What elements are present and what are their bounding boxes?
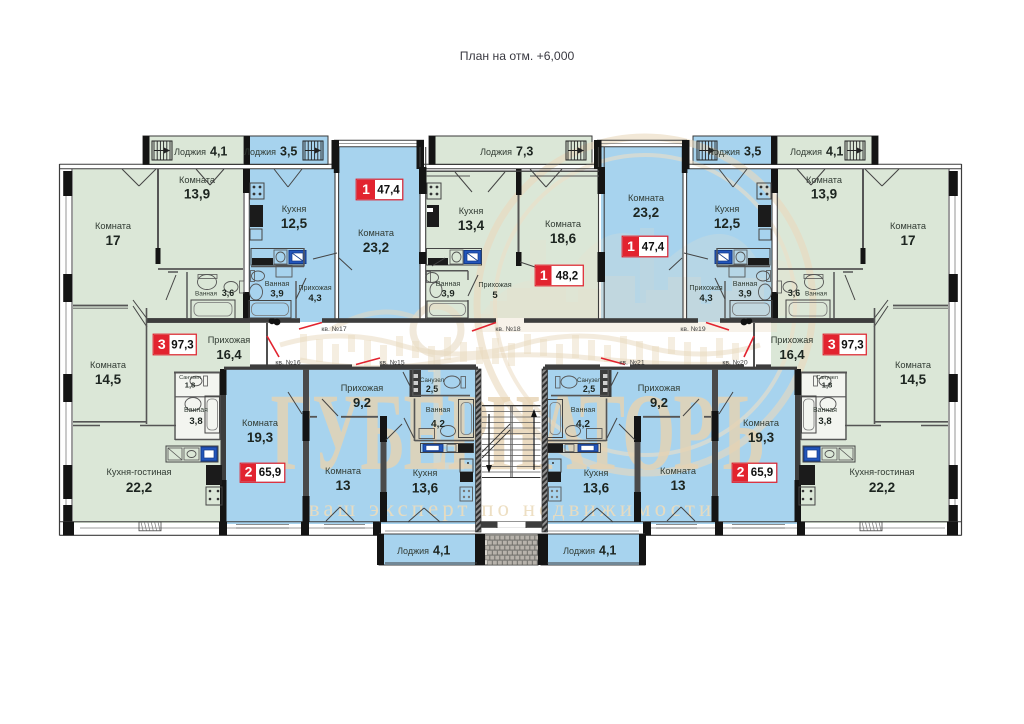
svg-text:Санузел: Санузел bbox=[420, 377, 444, 384]
svg-text:4,1: 4,1 bbox=[210, 145, 227, 159]
svg-text:23,2: 23,2 bbox=[633, 205, 659, 220]
svg-text:3: 3 bbox=[828, 336, 836, 352]
svg-text:97,3: 97,3 bbox=[171, 340, 193, 352]
svg-text:кв. №16: кв. №16 bbox=[275, 360, 300, 367]
svg-text:2,5: 2,5 bbox=[426, 384, 438, 394]
svg-text:1: 1 bbox=[362, 181, 370, 197]
svg-text:9,2: 9,2 bbox=[353, 395, 371, 410]
svg-text:План на отм. +6,000: План на отм. +6,000 bbox=[460, 49, 575, 63]
svg-text:Кухня-гостиная: Кухня-гостиная bbox=[107, 467, 172, 477]
svg-text:Кухня: Кухня bbox=[584, 468, 609, 478]
svg-text:19,3: 19,3 bbox=[748, 430, 775, 445]
svg-text:Комната: Комната bbox=[660, 466, 697, 476]
svg-text:Прихожая: Прихожая bbox=[771, 335, 814, 345]
svg-text:22,2: 22,2 bbox=[126, 480, 152, 495]
svg-text:ваш эксперт по недвижимости: ваш эксперт по недвижимости bbox=[309, 496, 715, 521]
svg-text:кв. №19: кв. №19 bbox=[680, 326, 705, 333]
svg-text:13,9: 13,9 bbox=[184, 187, 210, 202]
svg-text:Комната: Комната bbox=[179, 175, 216, 185]
svg-text:Комната: Комната bbox=[325, 466, 362, 476]
svg-text:кв. №20: кв. №20 bbox=[722, 360, 747, 367]
svg-text:14,5: 14,5 bbox=[95, 372, 122, 387]
svg-text:Прихожая: Прихожая bbox=[478, 280, 511, 289]
svg-text:97,3: 97,3 bbox=[841, 340, 863, 352]
svg-text:Кухня: Кухня bbox=[282, 204, 307, 214]
svg-text:Ванная: Ванная bbox=[436, 279, 461, 288]
svg-text:4,2: 4,2 bbox=[431, 419, 445, 430]
svg-text:13: 13 bbox=[335, 478, 351, 493]
svg-text:3,9: 3,9 bbox=[738, 289, 751, 300]
svg-text:3,5: 3,5 bbox=[280, 145, 297, 159]
svg-text:2,5: 2,5 bbox=[583, 384, 595, 394]
svg-text:Прихожая: Прихожая bbox=[208, 335, 251, 345]
svg-text:Ванная: Ванная bbox=[265, 279, 290, 288]
svg-text:Кухня: Кухня bbox=[715, 204, 740, 214]
svg-text:4,1: 4,1 bbox=[433, 544, 450, 558]
svg-text:2: 2 bbox=[737, 464, 745, 480]
svg-text:13,4: 13,4 bbox=[458, 218, 485, 233]
svg-text:Прихожая: Прихожая bbox=[341, 383, 384, 393]
svg-text:13,9: 13,9 bbox=[811, 187, 837, 202]
svg-text:5: 5 bbox=[492, 290, 498, 301]
svg-text:12,5: 12,5 bbox=[714, 216, 741, 231]
svg-text:кв. №17: кв. №17 bbox=[321, 326, 346, 333]
svg-text:Ванная: Ванная bbox=[733, 279, 758, 288]
svg-text:Комната: Комната bbox=[358, 228, 395, 238]
svg-text:Комната: Комната bbox=[895, 360, 932, 370]
svg-text:Санузел: Санузел bbox=[577, 377, 601, 384]
svg-text:47,4: 47,4 bbox=[642, 242, 665, 254]
svg-text:Ванная: Ванная bbox=[195, 291, 217, 298]
svg-text:Комната: Комната bbox=[743, 418, 780, 428]
svg-text:Комната: Комната bbox=[806, 175, 843, 185]
svg-text:3,9: 3,9 bbox=[270, 289, 283, 300]
svg-text:48,2: 48,2 bbox=[556, 271, 578, 283]
svg-text:Прихожая: Прихожая bbox=[298, 283, 331, 292]
svg-text:Кухня: Кухня bbox=[413, 468, 438, 478]
svg-text:4,1: 4,1 bbox=[599, 544, 616, 558]
svg-text:Прихожая: Прихожая bbox=[638, 383, 681, 393]
svg-text:Комната: Комната bbox=[242, 418, 279, 428]
svg-text:Ванная: Ванная bbox=[184, 407, 208, 414]
svg-text:Комната: Комната bbox=[545, 219, 582, 229]
svg-text:Ванная: Ванная bbox=[805, 291, 827, 298]
svg-text:65,9: 65,9 bbox=[259, 467, 281, 479]
svg-text:4,1: 4,1 bbox=[826, 145, 843, 159]
svg-text:13,6: 13,6 bbox=[412, 481, 439, 496]
svg-text:12,5: 12,5 bbox=[281, 216, 308, 231]
svg-text:3,5: 3,5 bbox=[744, 145, 761, 159]
svg-text:Лоджия: Лоджия bbox=[397, 546, 429, 556]
svg-text:23,2: 23,2 bbox=[363, 240, 389, 255]
svg-text:4,3: 4,3 bbox=[699, 293, 712, 304]
svg-text:3,6: 3,6 bbox=[222, 288, 234, 298]
svg-text:3,8: 3,8 bbox=[818, 416, 831, 427]
svg-text:Комната: Комната bbox=[628, 193, 665, 203]
svg-text:Ванная: Ванная bbox=[571, 405, 596, 414]
svg-text:16,4: 16,4 bbox=[779, 347, 805, 362]
svg-text:Лоджия: Лоджия bbox=[174, 147, 206, 157]
svg-text:14,5: 14,5 bbox=[900, 372, 927, 387]
svg-text:18,6: 18,6 bbox=[550, 231, 577, 246]
svg-text:4,2: 4,2 bbox=[576, 419, 590, 430]
svg-text:1: 1 bbox=[627, 238, 635, 254]
svg-text:Ванная: Ванная bbox=[426, 405, 451, 414]
svg-text:47,4: 47,4 bbox=[377, 185, 400, 197]
svg-text:2: 2 bbox=[245, 464, 253, 480]
svg-text:17: 17 bbox=[105, 233, 120, 248]
svg-text:22,2: 22,2 bbox=[869, 480, 895, 495]
svg-text:Комната: Комната bbox=[890, 221, 927, 231]
svg-text:65,9: 65,9 bbox=[751, 467, 773, 479]
svg-text:кв. №15: кв. №15 bbox=[379, 360, 404, 367]
svg-text:Комната: Комната bbox=[90, 360, 127, 370]
svg-text:3,6: 3,6 bbox=[788, 288, 800, 298]
svg-text:1,8: 1,8 bbox=[822, 381, 833, 390]
svg-text:13,6: 13,6 bbox=[583, 481, 610, 496]
svg-text:9,2: 9,2 bbox=[650, 395, 668, 410]
svg-text:1,8: 1,8 bbox=[185, 381, 196, 390]
svg-text:17: 17 bbox=[900, 233, 915, 248]
svg-text:3,9: 3,9 bbox=[441, 289, 454, 300]
svg-text:Кухня: Кухня bbox=[459, 206, 484, 216]
svg-text:Лоджия: Лоджия bbox=[708, 147, 740, 157]
svg-text:Кухня-гостиная: Кухня-гостиная bbox=[850, 467, 915, 477]
svg-text:3: 3 bbox=[158, 336, 166, 352]
svg-text:кв. №18: кв. №18 bbox=[495, 326, 520, 333]
svg-text:13: 13 bbox=[670, 478, 686, 493]
svg-text:Комната: Комната bbox=[95, 221, 132, 231]
svg-text:Прихожая: Прихожая bbox=[689, 283, 722, 292]
svg-text:Лоджия: Лоджия bbox=[480, 147, 512, 157]
svg-text:Лоджия: Лоджия bbox=[244, 147, 276, 157]
svg-text:Лоджия: Лоджия bbox=[563, 546, 595, 556]
svg-text:4,3: 4,3 bbox=[308, 293, 321, 304]
svg-text:Ванная: Ванная bbox=[813, 407, 837, 414]
svg-text:3,8: 3,8 bbox=[189, 416, 202, 427]
svg-text:кв. №21: кв. №21 bbox=[619, 360, 644, 367]
svg-text:Лоджия: Лоджия bbox=[790, 147, 822, 157]
svg-text:16,4: 16,4 bbox=[216, 347, 242, 362]
svg-text:7,3: 7,3 bbox=[516, 145, 533, 159]
svg-text:19,3: 19,3 bbox=[247, 430, 274, 445]
svg-text:1: 1 bbox=[540, 267, 548, 283]
